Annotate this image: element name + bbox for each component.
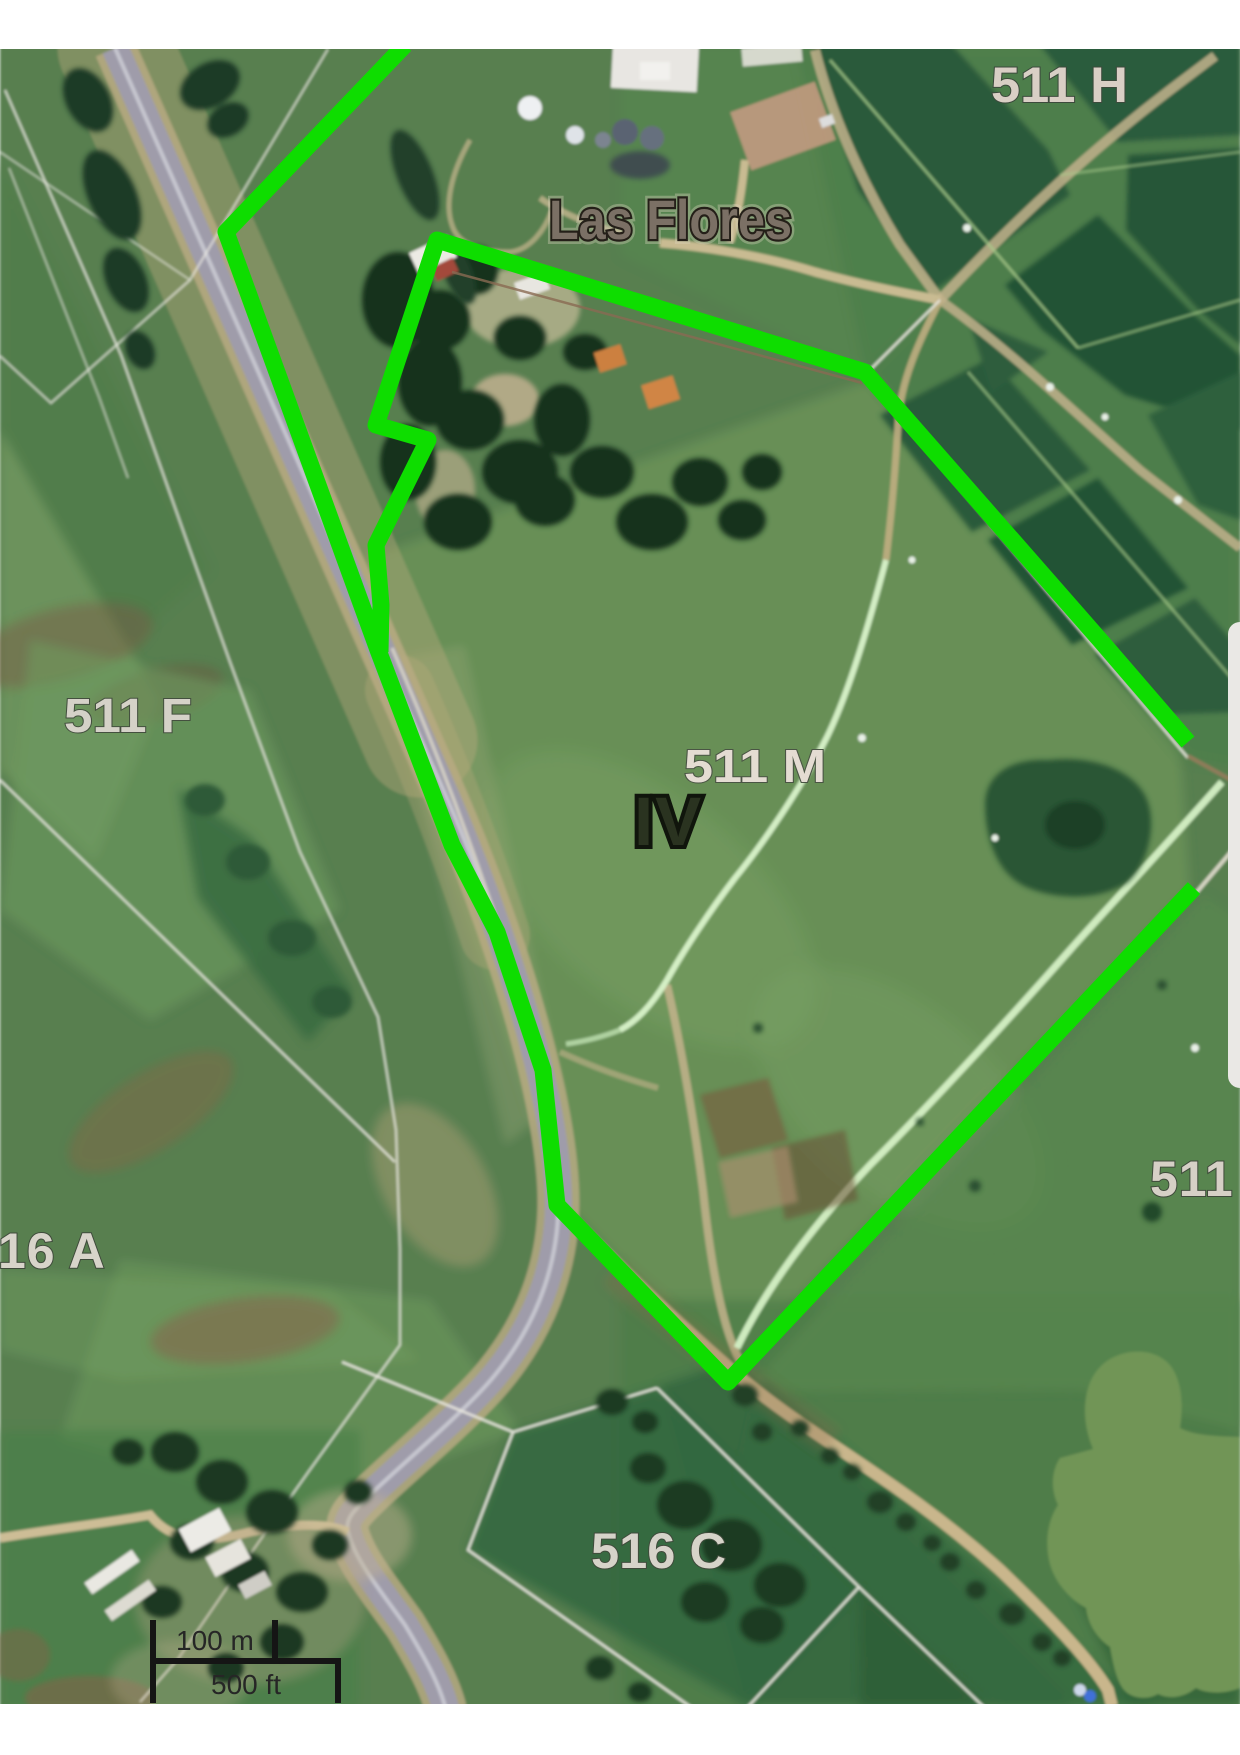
svg-text:500 ft: 500 ft xyxy=(211,1669,281,1700)
svg-text:100 m: 100 m xyxy=(176,1625,254,1656)
svg-text:511 M: 511 M xyxy=(684,740,826,792)
svg-text:16 A: 16 A xyxy=(0,1223,106,1279)
svg-text:511 F: 511 F xyxy=(64,690,192,743)
svg-text:516 C: 516 C xyxy=(591,1523,726,1579)
svg-text:IV: IV xyxy=(634,783,703,860)
svg-text:Las Flores: Las Flores xyxy=(549,188,792,251)
svg-text:511: 511 xyxy=(1150,1151,1234,1207)
svg-text:511 H: 511 H xyxy=(991,57,1128,113)
